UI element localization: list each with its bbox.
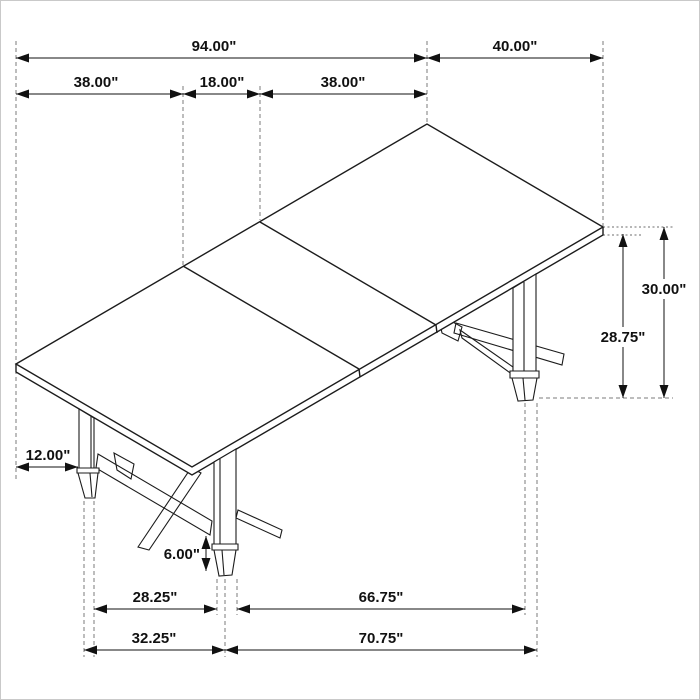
dim-label-height-total: 30.00" xyxy=(642,281,687,298)
back-left-leg xyxy=(79,409,94,468)
dim-label-feet-length-outer: 70.75" xyxy=(359,630,404,647)
dim-label-height-underside: 28.75" xyxy=(601,329,646,346)
drawing-canvas: 94.00" 40.00" 38.00" 18.00" 38.00" 12.00… xyxy=(0,0,700,700)
arrowhead xyxy=(237,605,250,614)
table-dimension-drawing: 94.00" 40.00" 38.00" 18.00" 38.00" 12.00… xyxy=(1,1,699,699)
front-left-foot xyxy=(214,550,236,576)
front-left-leg xyxy=(214,449,236,544)
arrowhead xyxy=(16,54,29,63)
seam-edge-notch xyxy=(436,325,437,333)
arrowhead xyxy=(619,234,628,247)
dim-label-right-leaf: 38.00" xyxy=(321,74,366,91)
arrowhead xyxy=(260,90,273,99)
arrowhead xyxy=(427,54,440,63)
left-stretcher-stub xyxy=(236,510,282,538)
back-left-foot-collar xyxy=(77,468,99,473)
arrowhead xyxy=(524,646,537,655)
dim-label-right-end-width: 40.00" xyxy=(493,38,538,55)
dim-label-feet-width-inner: 28.25" xyxy=(133,589,178,606)
arrowhead xyxy=(414,54,427,63)
dim-label-foot-height: 6.00" xyxy=(164,546,200,563)
front-left-foot-collar xyxy=(212,544,238,550)
arrowhead xyxy=(170,90,183,99)
arrowhead xyxy=(619,385,628,398)
arrowhead xyxy=(225,646,238,655)
dim-label-center-leaf: 18.00" xyxy=(200,74,245,91)
dim-label-left-leaf: 38.00" xyxy=(74,74,119,91)
arrowhead xyxy=(247,90,260,99)
left-end-bracket xyxy=(114,453,134,479)
arrowhead xyxy=(202,536,211,549)
dim-label-overhang: 12.00" xyxy=(26,447,71,464)
seam-edge-notch xyxy=(359,369,360,377)
dim-label-overall-length: 94.00" xyxy=(192,38,237,55)
arrowhead xyxy=(204,605,217,614)
front-right-foot-collar xyxy=(510,371,539,378)
arrowhead xyxy=(16,90,29,99)
arrowhead xyxy=(512,605,525,614)
arrowhead xyxy=(202,558,211,571)
arrowhead xyxy=(183,90,196,99)
dim-label-feet-width-outer: 32.25" xyxy=(132,630,177,647)
arrowhead xyxy=(590,54,603,63)
arrowhead xyxy=(660,385,669,398)
back-left-foot xyxy=(78,473,98,498)
arrowhead xyxy=(84,646,97,655)
arrowhead xyxy=(414,90,427,99)
dim-label-feet-length-inner: 66.75" xyxy=(359,589,404,606)
arrowhead xyxy=(94,605,107,614)
arrowhead xyxy=(660,227,669,240)
arrowhead xyxy=(212,646,225,655)
